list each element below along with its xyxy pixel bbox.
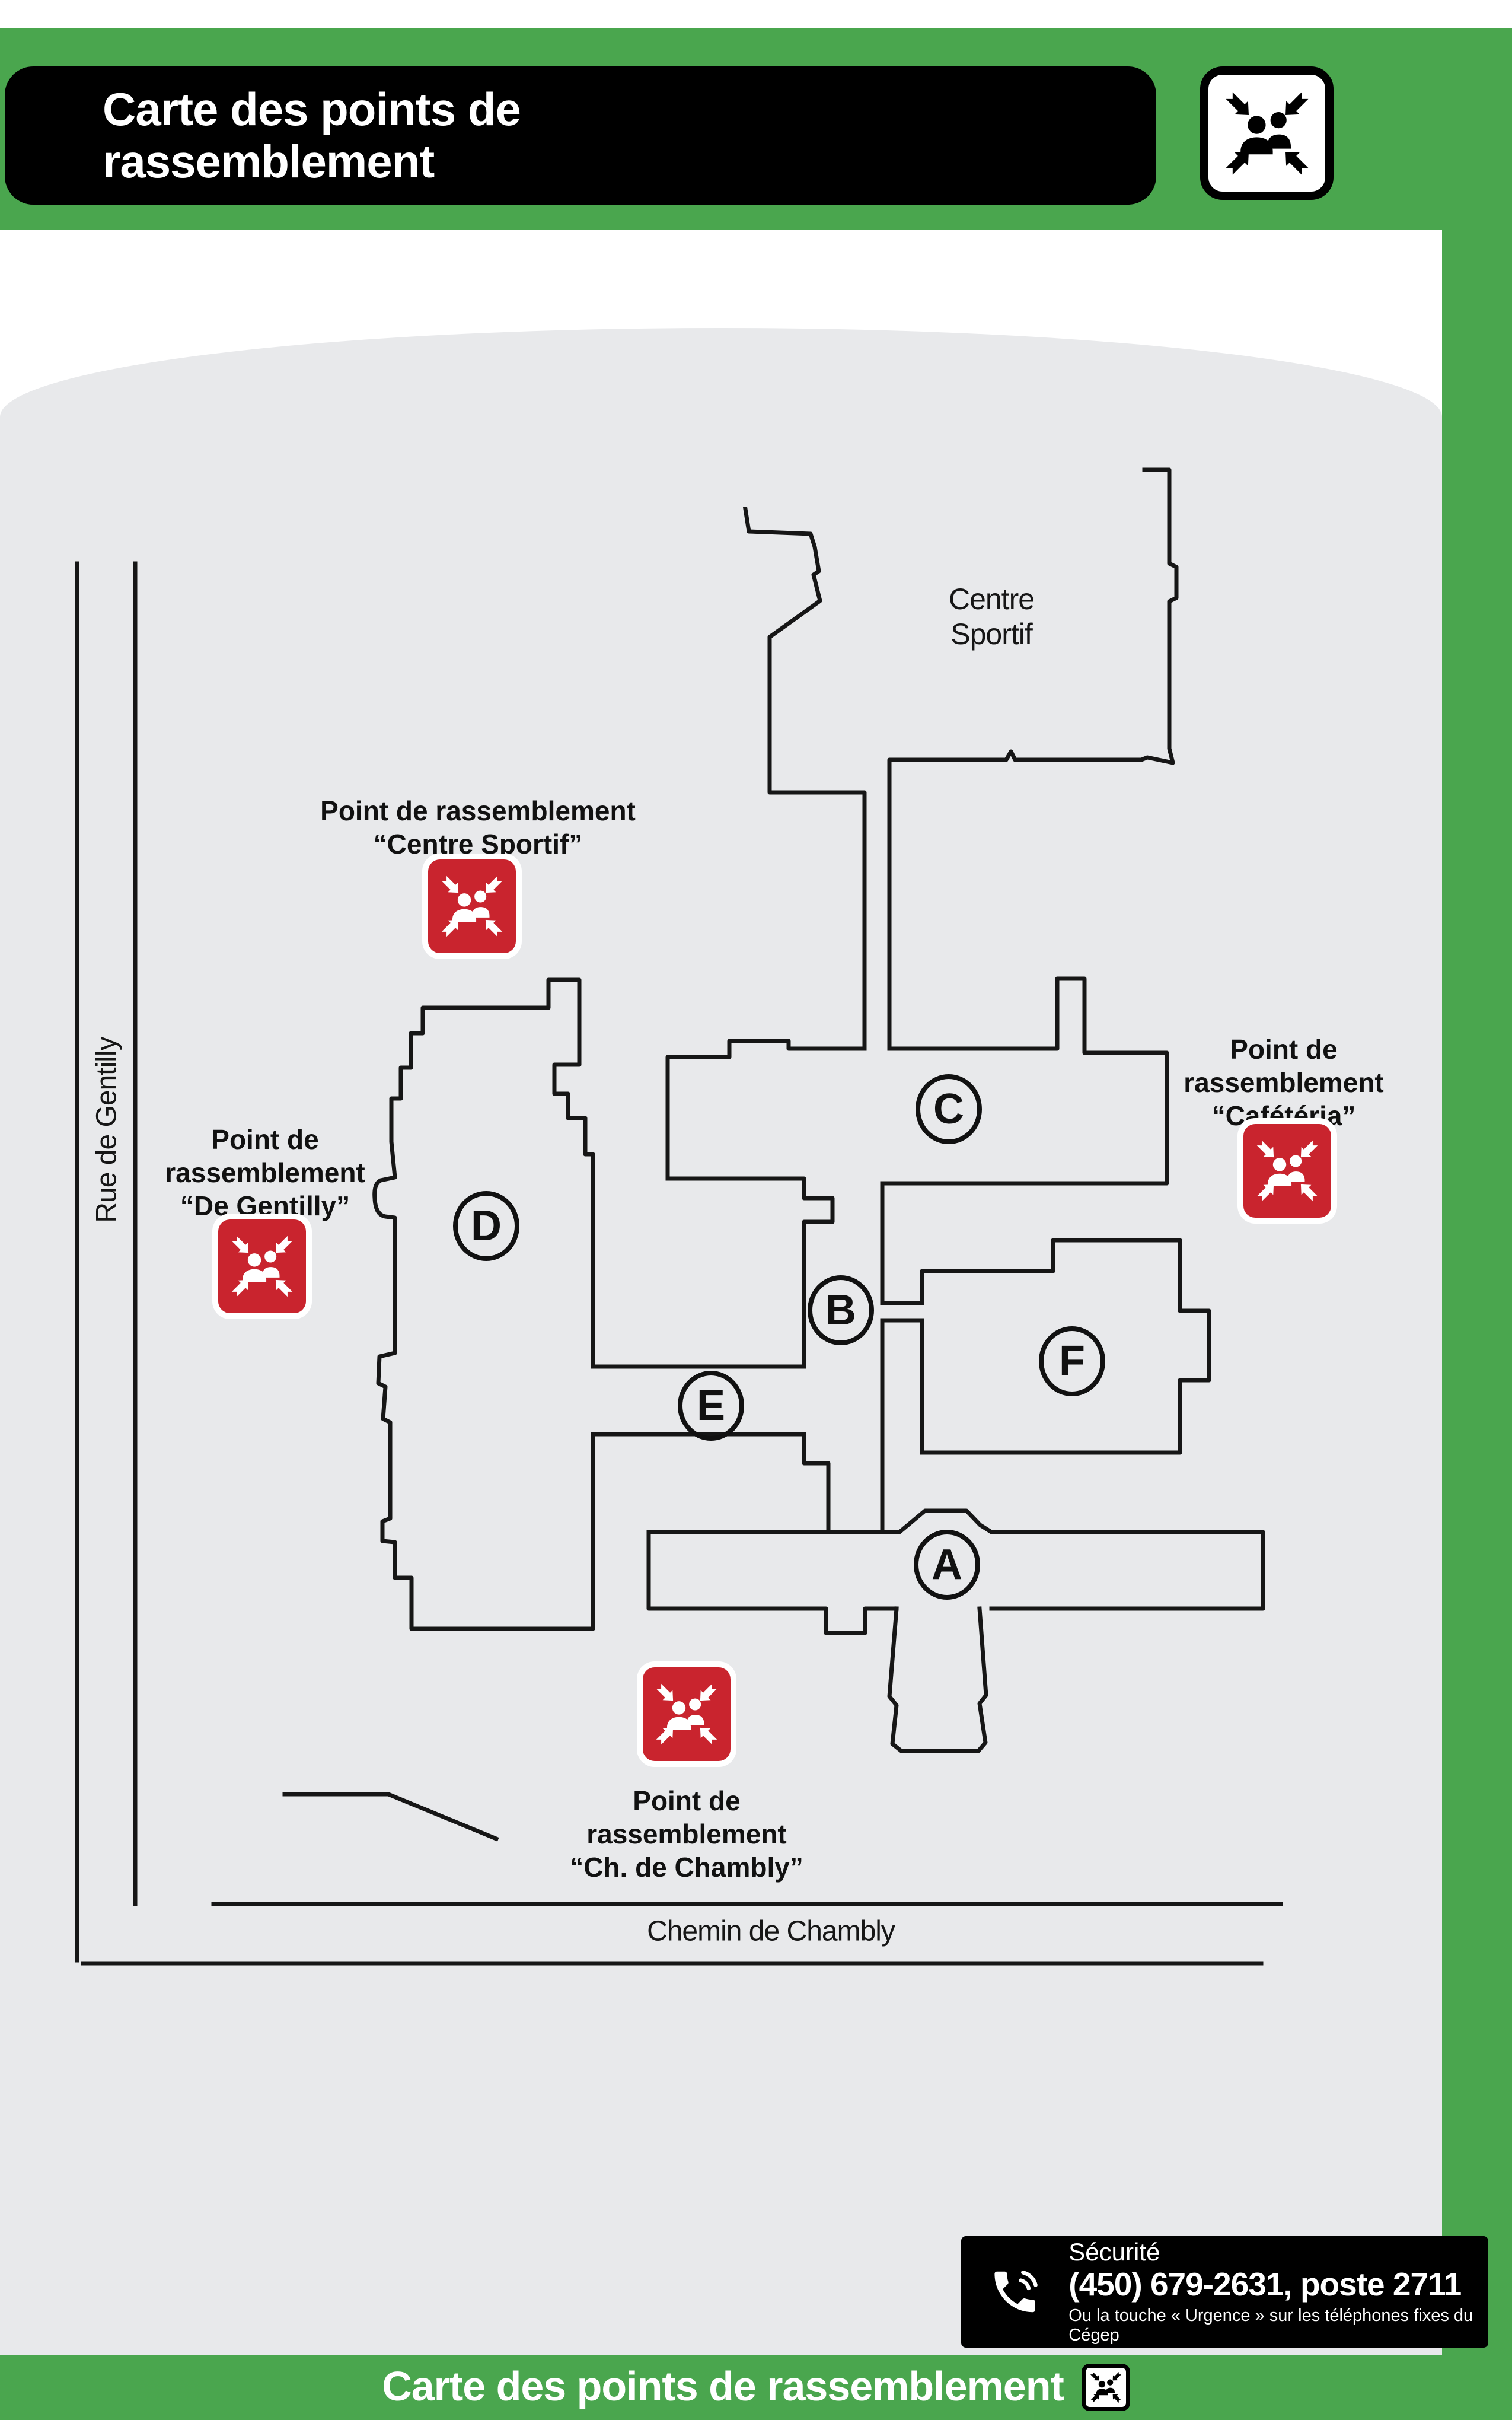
building-letter: C	[933, 1085, 964, 1133]
footer-title: Carte des points de rassemblement	[382, 2362, 1064, 2410]
building-letter: A	[932, 1540, 962, 1589]
phone-icon	[988, 2262, 1042, 2322]
centre-sportif-outline	[745, 470, 1176, 1049]
south-path-line	[285, 1794, 496, 1839]
security-title: Sécurité	[1068, 2238, 1488, 2266]
building-letter: E	[697, 1381, 725, 1430]
assembly-point-icon-chambly	[643, 1667, 731, 1761]
footer-assembly-icon	[1082, 2364, 1130, 2411]
building-marker-e: E	[678, 1371, 744, 1441]
assembly-label-centre-sportif: Point de rassemblement “Centre Sportif”	[320, 794, 636, 861]
assembly-label-cafeteria: Point de rassemblement “Cafétéria”	[1184, 1033, 1384, 1132]
building-marker-b: B	[808, 1275, 874, 1345]
building-letter: D	[471, 1202, 502, 1250]
footer-bar: Carte des points de rassemblement	[0, 2355, 1512, 2420]
building-letter: F	[1059, 1337, 1085, 1386]
building-d-outline	[375, 980, 593, 1629]
assembly-label-de-gentilly: Point de rassemblement “De Gentilly”	[165, 1123, 365, 1222]
security-text-block: Sécurité (450) 679-2631, poste 2711 Ou l…	[1068, 2238, 1488, 2345]
security-note: Ou la touche « Urgence » sur les télépho…	[1068, 2306, 1488, 2345]
security-contact-box: Sécurité (450) 679-2631, poste 2711 Ou l…	[961, 2236, 1488, 2348]
street-label-chemin-de-chambly: Chemin de Chambly	[647, 1915, 895, 1948]
building-marker-c: C	[916, 1074, 982, 1144]
building-c-outline	[668, 979, 1167, 1532]
building-marker-a: A	[914, 1530, 980, 1600]
assembly-label-chambly: Point de rassemblement “Ch. de Chambly”	[570, 1784, 803, 1884]
security-phone-number: (450) 679-2631, poste 2711	[1068, 2266, 1488, 2303]
building-marker-d: D	[453, 1191, 519, 1261]
assembly-map-poster: Carte des points de rassemblement Centre…	[0, 0, 1512, 2420]
assembly-point-icon-cafeteria	[1243, 1124, 1331, 1218]
street-label-rue-de-gentilly: Rue de Gentilly	[91, 1037, 123, 1222]
building-marker-f: F	[1039, 1326, 1105, 1396]
assembly-point-icon-centre-sportif	[428, 859, 516, 953]
building-letter: B	[825, 1286, 856, 1335]
centre-sportif-label: Centre Sportif	[949, 582, 1034, 652]
assembly-point-icon-de-gentilly	[218, 1219, 306, 1313]
